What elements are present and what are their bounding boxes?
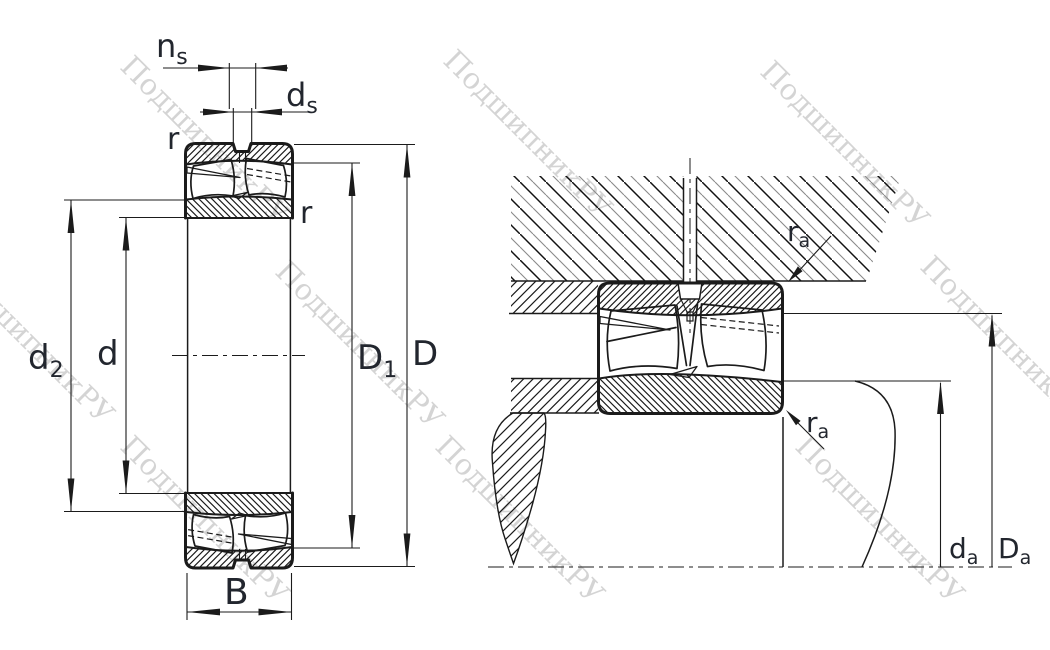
housing-section [511,176,901,281]
housing-shoulder [511,282,598,314]
label-D: D [412,334,438,374]
bearing-technical-drawing: ns ds r r d2 d D1 D B [0,0,1050,650]
left-view-bearing-section: ns ds r r d2 d D1 D B [28,27,438,620]
shaft-shoulder [511,379,598,414]
label-d2: d2 [28,338,64,383]
shaft-section-break [492,413,546,564]
bearing-drawing-canvas: ПодшипникРУ ПодшипникРУ ПодшипникРУ Подш… [0,0,1050,650]
inner-ring-bottom-section [186,494,292,515]
label-r-right: r [300,196,313,231]
label-da: da [949,532,978,569]
shaft-shoulder-fillet [855,381,895,567]
dim-Da [989,314,996,568]
dim-da [937,381,944,567]
label-ns: ns [156,27,188,70]
label-r-top: r [167,122,180,157]
label-D1: D1 [357,338,397,383]
label-ra-bottom: ra [806,406,829,443]
inner-ring-top-section [186,197,292,218]
cage-hidden-line-mounted [701,318,779,334]
label-B: B [224,572,249,613]
label-d: d [97,334,119,374]
right-view-mounted-bearing: ra ra da Da [488,158,1031,569]
label-Da: Da [998,532,1031,569]
label-ds: ds [286,76,318,119]
